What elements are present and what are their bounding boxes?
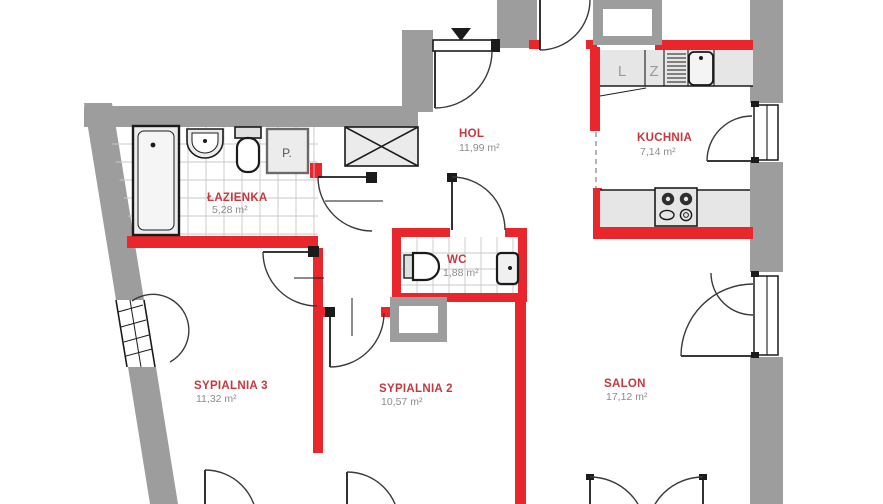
room-area: 1,88 m²	[443, 267, 479, 279]
floor-plan-page: P. ŁAZIENKA 5,28 m² L	[0, 0, 883, 504]
vestibule-door	[540, 0, 590, 50]
stove	[655, 188, 697, 226]
kitchen-duct-box	[593, 0, 662, 45]
room-name: SALON	[604, 378, 646, 390]
washing-machine-label: P.	[282, 146, 292, 160]
room-area: 10,57 m²	[381, 396, 423, 408]
room-label-lazienka: ŁAZIENKA 5,28 m²	[207, 192, 268, 216]
room-name: KUCHNIA	[637, 132, 692, 144]
dishwasher-cabinet-label: Z	[649, 63, 658, 80]
room-label-salon: SALON 17,12 m²	[604, 378, 648, 403]
room-area: 11,32 m²	[196, 393, 237, 405]
room-label-hol: HOL 11,99 m²	[459, 128, 500, 154]
toilet	[235, 127, 261, 172]
kitchen-counter-top: L Z	[600, 50, 753, 96]
right-wall-middle	[750, 162, 783, 272]
living-room: SALON 17,12 m²	[586, 271, 778, 504]
bedroom2-door	[325, 298, 384, 367]
room-name: SYPIALNIA 2	[379, 383, 453, 395]
bathtub	[133, 126, 179, 235]
washing-machine: P.	[267, 129, 308, 173]
bedroom2-salon-wall	[515, 302, 526, 504]
room-label-kuchnia: KUCHNIA 7,14 m²	[637, 132, 692, 158]
room-area: 7,14 m²	[640, 146, 676, 158]
right-wall-bottom	[750, 357, 783, 504]
room-name: SYPIALNIA 3	[194, 380, 268, 392]
fridge-cabinet-label: L	[618, 63, 626, 80]
wc-door	[447, 173, 505, 230]
bathroom-sink	[187, 129, 223, 158]
room-area: 5,28 m²	[212, 204, 248, 216]
wc: WC 1,88 m²	[392, 173, 527, 302]
room-name: ŁAZIENKA	[207, 192, 268, 204]
bedroom-divider-wall	[313, 248, 323, 453]
kitchen-balcony-door	[707, 101, 778, 163]
bedroom3-window	[205, 470, 257, 504]
entrance-door	[433, 28, 500, 108]
duct-shaft-small	[390, 297, 447, 342]
entrance-left-wall	[402, 30, 433, 112]
room-area: 17,12 m²	[606, 391, 648, 403]
salon-balcony-window	[681, 271, 778, 358]
room-label-sypialnia2: SYPIALNIA 2 10,57 m²	[379, 383, 453, 408]
wc-sink	[497, 253, 518, 284]
vestibule-stub-left	[529, 40, 540, 49]
room-name: HOL	[459, 128, 484, 140]
wc-toilet	[404, 253, 439, 280]
room-name: WC	[447, 254, 467, 266]
left-diagonal-wall-lower	[128, 367, 178, 504]
right-wall-top	[750, 0, 783, 103]
hall-kitchen-wall	[590, 47, 600, 131]
bathroom: P. ŁAZIENKA 5,28 m²	[105, 126, 318, 236]
bedroom2-window	[347, 472, 399, 504]
kitchen-sink	[689, 52, 713, 85]
bathroom-east-stub	[310, 163, 322, 178]
room-label-sypialnia3: SYPIALNIA 3 11,32 m²	[194, 380, 268, 405]
top-wall	[84, 106, 418, 127]
entrance-marker-icon	[451, 28, 471, 41]
kitchen-south-wall	[595, 227, 753, 239]
bedroom3-side-window	[116, 294, 189, 367]
kitchen-counter-bottom	[600, 188, 750, 227]
salon-french-door	[586, 474, 707, 504]
room-area: 11,99 m²	[459, 142, 500, 154]
duct-shaft-x	[345, 127, 418, 166]
floor-plan: P. ŁAZIENKA 5,28 m² L	[0, 0, 883, 504]
bathroom-door	[318, 172, 383, 231]
bathroom-south-wall	[127, 236, 318, 248]
